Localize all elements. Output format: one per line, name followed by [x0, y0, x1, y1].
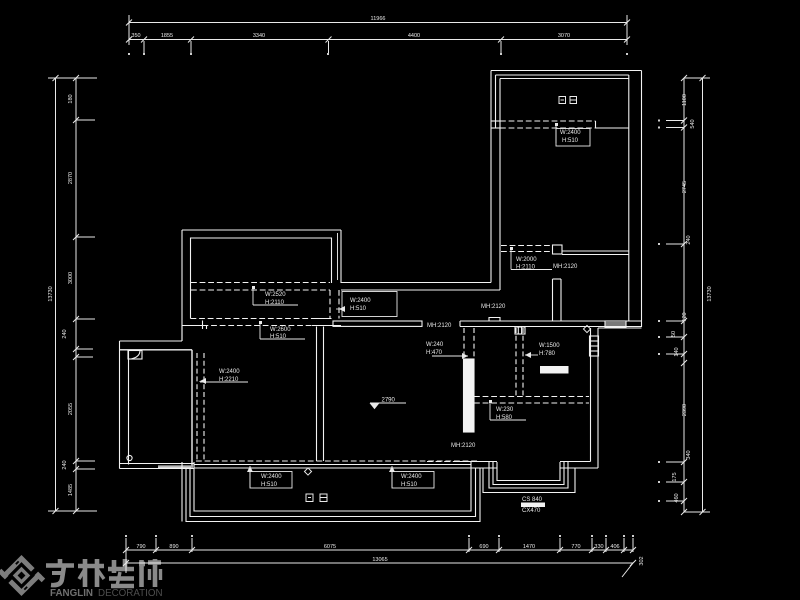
svg-text:H:510: H:510 [270, 334, 287, 340]
svg-text:H:2110: H:2110 [265, 300, 285, 306]
svg-text:W:240: W:240 [426, 342, 444, 348]
svg-text:180: 180 [68, 94, 74, 103]
svg-text:CS 840: CS 840 [522, 497, 543, 503]
svg-text:460: 460 [674, 493, 680, 502]
svg-text:11966: 11966 [371, 16, 386, 22]
svg-text:1855: 1855 [161, 33, 173, 39]
svg-text:240: 240 [62, 460, 68, 469]
svg-text:13730: 13730 [48, 286, 54, 301]
svg-text:2055: 2055 [68, 403, 74, 415]
svg-text:H:780: H:780 [539, 351, 556, 357]
svg-text:MH:2120: MH:2120 [451, 443, 476, 449]
svg-text:3340: 3340 [253, 33, 265, 39]
svg-text:FANGLIN: FANGLIN [50, 588, 93, 599]
svg-text:350: 350 [131, 33, 140, 39]
svg-text:W:2520: W:2520 [265, 292, 286, 298]
svg-text:W:2400: W:2400 [261, 474, 282, 480]
svg-text:H:2210: H:2210 [219, 377, 239, 383]
svg-text:4400: 4400 [408, 33, 420, 39]
svg-text:770: 770 [571, 544, 580, 550]
svg-text:MH:2120: MH:2120 [427, 323, 452, 329]
svg-text:1470: 1470 [523, 544, 535, 550]
svg-text:175: 175 [672, 472, 678, 481]
svg-text:302: 302 [639, 556, 645, 565]
svg-text:H:470: H:470 [426, 350, 443, 356]
svg-text:H:510: H:510 [562, 138, 579, 144]
svg-text:2790: 2790 [382, 398, 396, 404]
svg-text:3070: 3070 [558, 33, 570, 39]
svg-text:H:2110: H:2110 [516, 265, 536, 271]
svg-text:2870: 2870 [68, 172, 74, 184]
svg-text:3000: 3000 [68, 272, 74, 284]
svg-text:W:2600: W:2600 [270, 327, 291, 333]
svg-text:W:2400: W:2400 [560, 130, 581, 136]
svg-text:50: 50 [671, 331, 677, 337]
svg-text:240: 240 [62, 329, 68, 338]
svg-text:330: 330 [594, 544, 603, 550]
svg-text:MH:2120: MH:2120 [553, 264, 578, 270]
svg-text:790: 790 [136, 544, 145, 550]
svg-text:13730: 13730 [707, 286, 713, 301]
svg-text:W:2000: W:2000 [516, 257, 537, 263]
svg-text:W:230: W:230 [496, 407, 514, 413]
svg-text:DECORATION: DECORATION [98, 588, 163, 599]
svg-text:120: 120 [682, 312, 688, 321]
svg-text:690: 690 [479, 544, 488, 550]
svg-text:890: 890 [169, 544, 178, 550]
svg-text:2745: 2745 [682, 181, 688, 193]
svg-text:CX470: CX470 [522, 508, 541, 514]
svg-text:MH:2120: MH:2120 [481, 304, 506, 310]
svg-text:W:2400: W:2400 [219, 369, 240, 375]
svg-text:13065: 13065 [372, 557, 387, 563]
svg-text:H:510: H:510 [261, 482, 278, 488]
svg-text:W:2400: W:2400 [401, 474, 422, 480]
svg-text:H:580: H:580 [496, 415, 513, 421]
svg-text:H:510: H:510 [350, 306, 367, 312]
svg-text:540: 540 [690, 119, 696, 128]
svg-text:140: 140 [674, 347, 680, 356]
svg-text:240: 240 [686, 235, 692, 244]
svg-text:W:2400: W:2400 [350, 298, 371, 304]
svg-text:1100: 1100 [682, 94, 688, 106]
svg-text:H:510: H:510 [401, 482, 418, 488]
svg-text:340: 340 [686, 450, 692, 459]
svg-text:6075: 6075 [324, 544, 336, 550]
svg-text:W:1500: W:1500 [539, 343, 560, 349]
svg-text:2390: 2390 [682, 404, 688, 416]
svg-text:1485: 1485 [68, 484, 74, 496]
svg-text:406: 406 [610, 544, 619, 550]
